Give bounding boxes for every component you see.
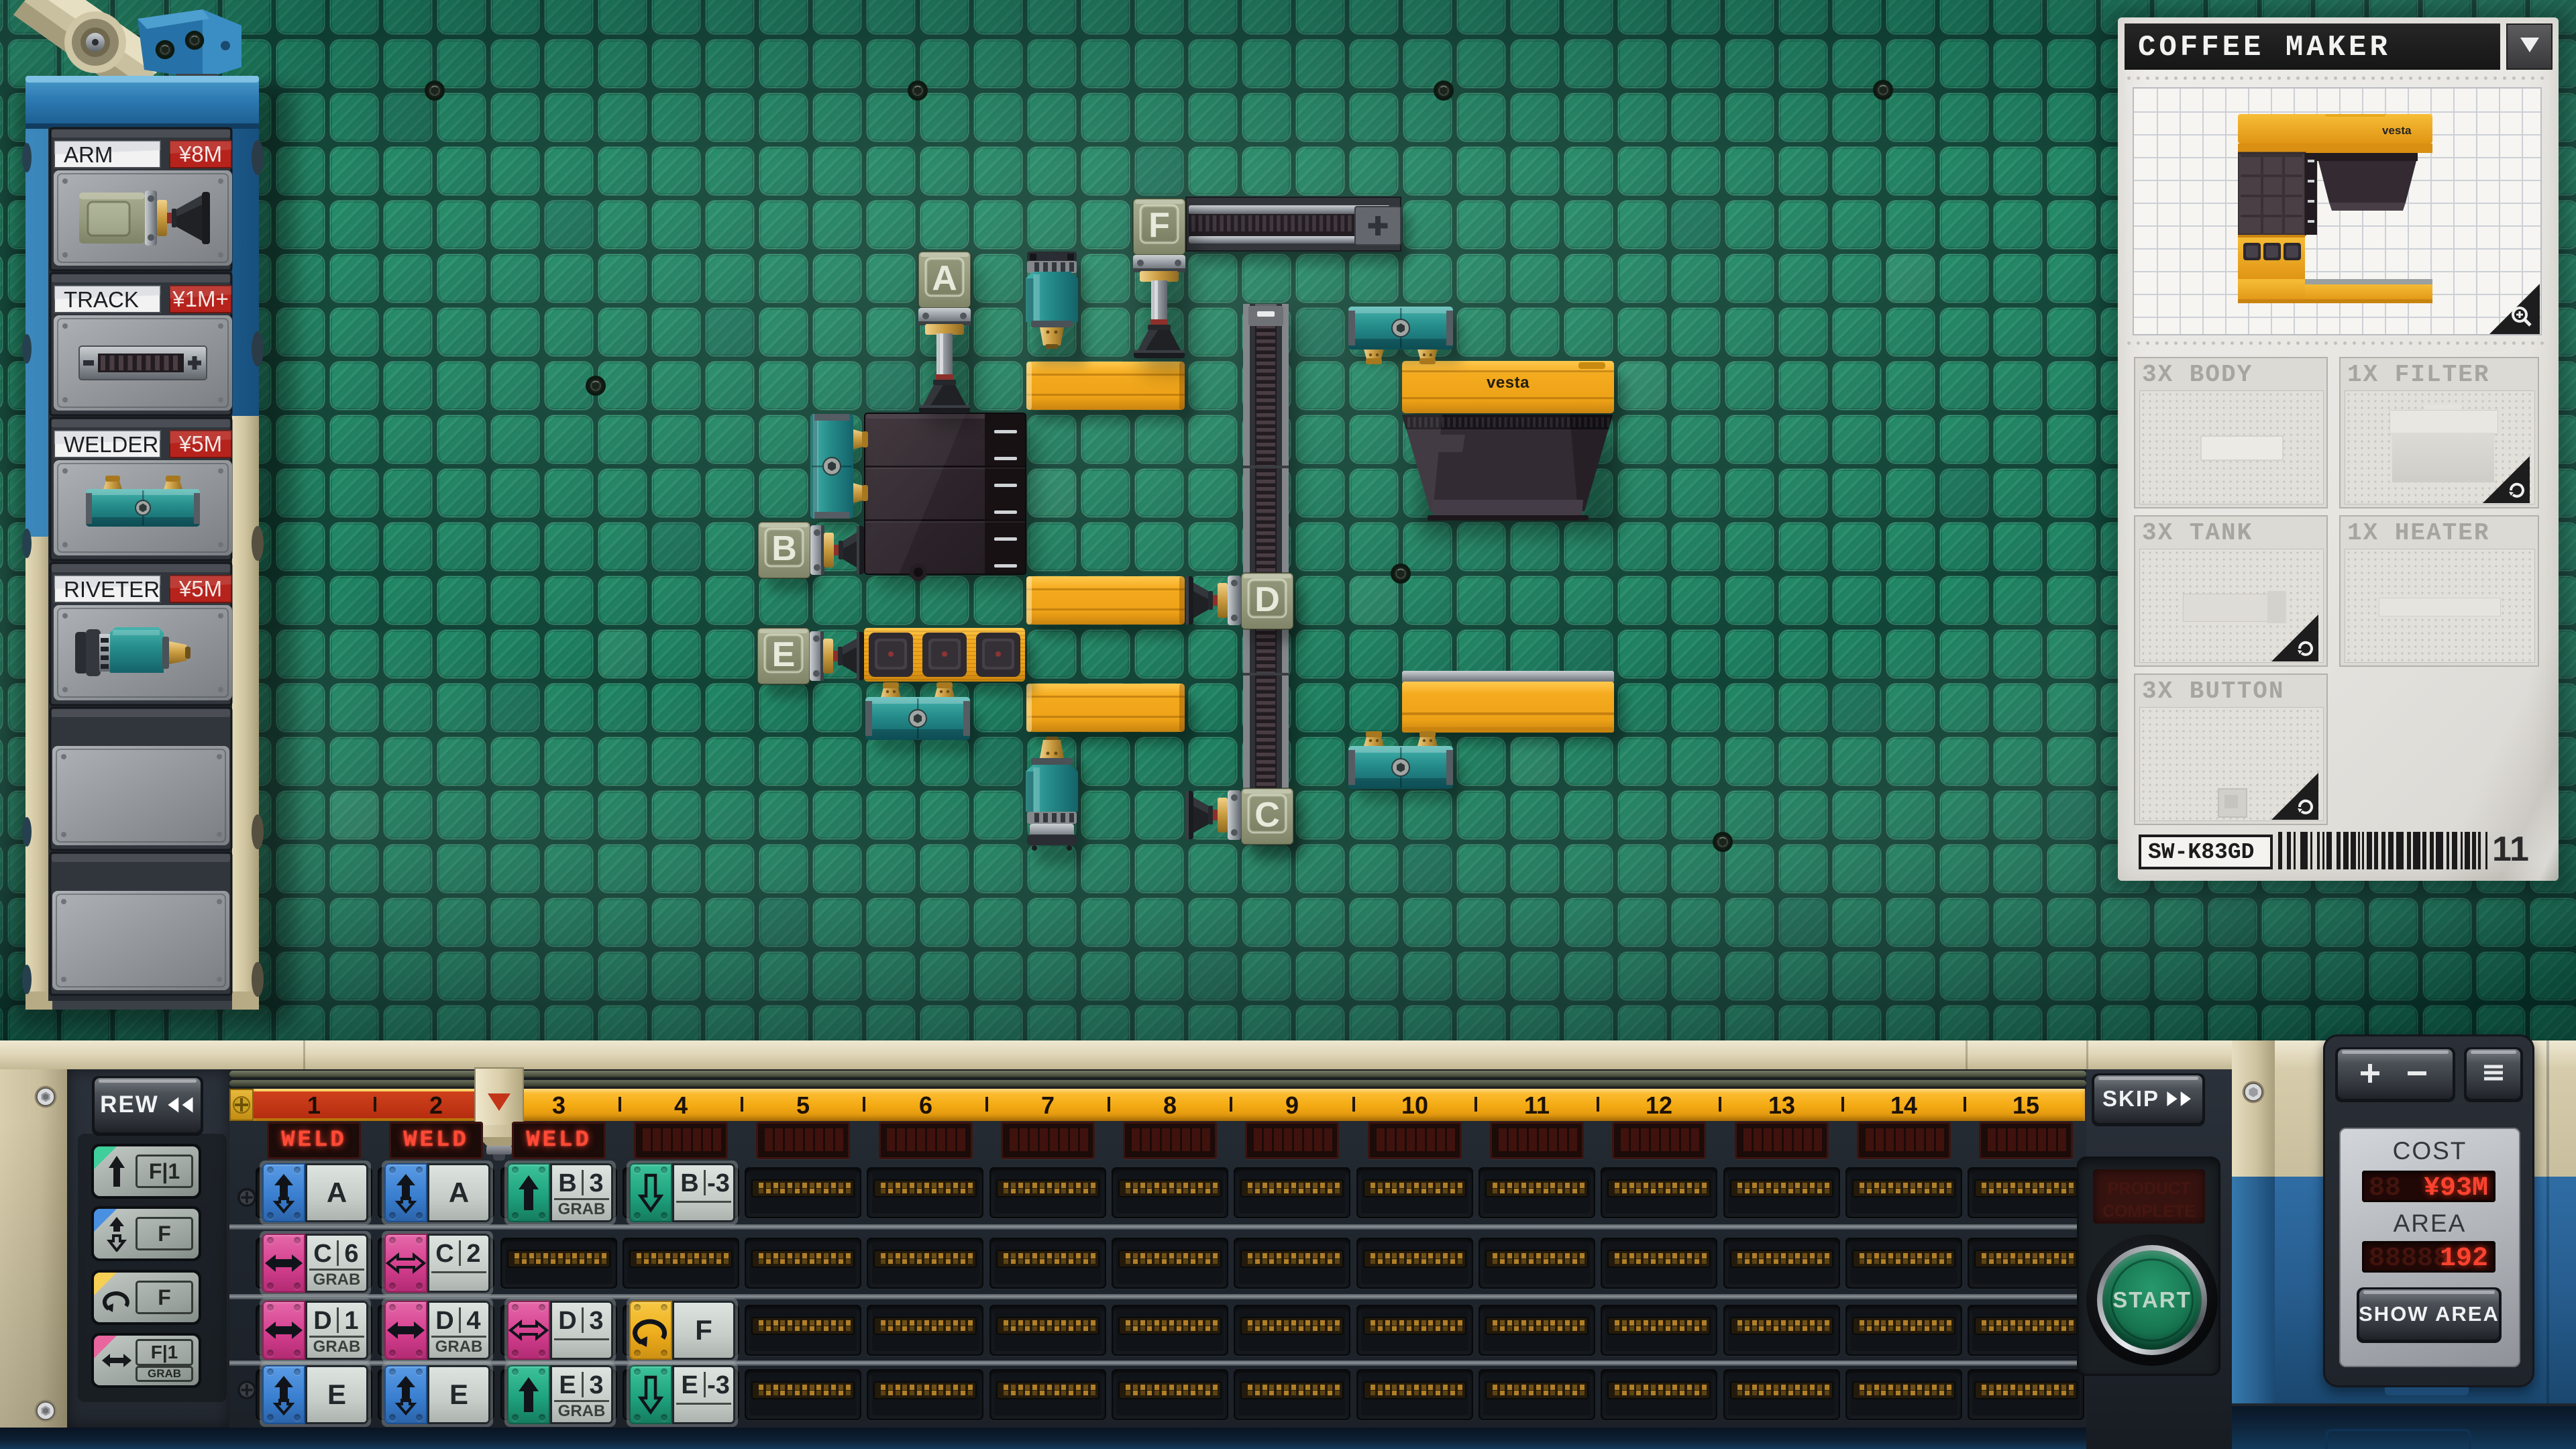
svg-text:D: D xyxy=(1254,580,1280,619)
svg-text:¥5M: ¥5M xyxy=(178,431,222,456)
svg-text:C: C xyxy=(1254,796,1280,835)
svg-text:A: A xyxy=(932,259,957,298)
svg-text:E: E xyxy=(772,635,796,674)
svg-text:ARM: ARM xyxy=(64,142,113,167)
svg-text:vesta: vesta xyxy=(1487,374,1529,392)
svg-text:RIVETER: RIVETER xyxy=(64,577,160,602)
svg-text:vesta: vesta xyxy=(2382,124,2412,137)
svg-text:¥8M: ¥8M xyxy=(178,142,222,166)
svg-text:¥1M+: ¥1M+ xyxy=(172,286,228,311)
svg-text:TRACK: TRACK xyxy=(64,287,139,312)
svg-text:B: B xyxy=(771,529,797,568)
svg-text:F: F xyxy=(1148,206,1170,245)
svg-text:¥5M: ¥5M xyxy=(178,576,222,601)
svg-text:WELDER: WELDER xyxy=(64,432,158,457)
